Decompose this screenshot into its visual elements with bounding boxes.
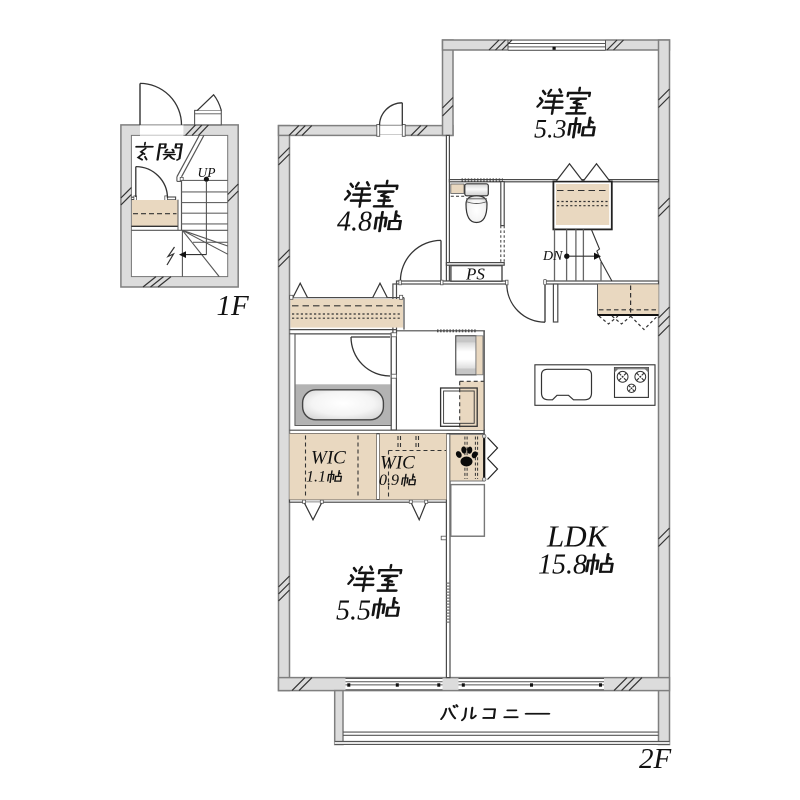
svg-text:2F: 2F xyxy=(639,743,672,775)
svg-text:1F: 1F xyxy=(217,290,250,322)
svg-text:UP: UP xyxy=(198,165,216,180)
svg-text:5.5: 5.5 xyxy=(336,596,371,627)
svg-text:WIC: WIC xyxy=(380,453,415,474)
svg-text:4.8: 4.8 xyxy=(337,207,372,238)
svg-text:0.9: 0.9 xyxy=(379,472,399,489)
svg-text:DN: DN xyxy=(542,249,563,264)
svg-text:PS: PS xyxy=(465,265,485,284)
svg-text:WIC: WIC xyxy=(311,448,346,469)
svg-text:15.8: 15.8 xyxy=(538,550,587,581)
svg-text:1.1: 1.1 xyxy=(306,469,326,486)
svg-text:LDK: LDK xyxy=(546,519,610,554)
svg-text:5.3: 5.3 xyxy=(534,115,567,144)
